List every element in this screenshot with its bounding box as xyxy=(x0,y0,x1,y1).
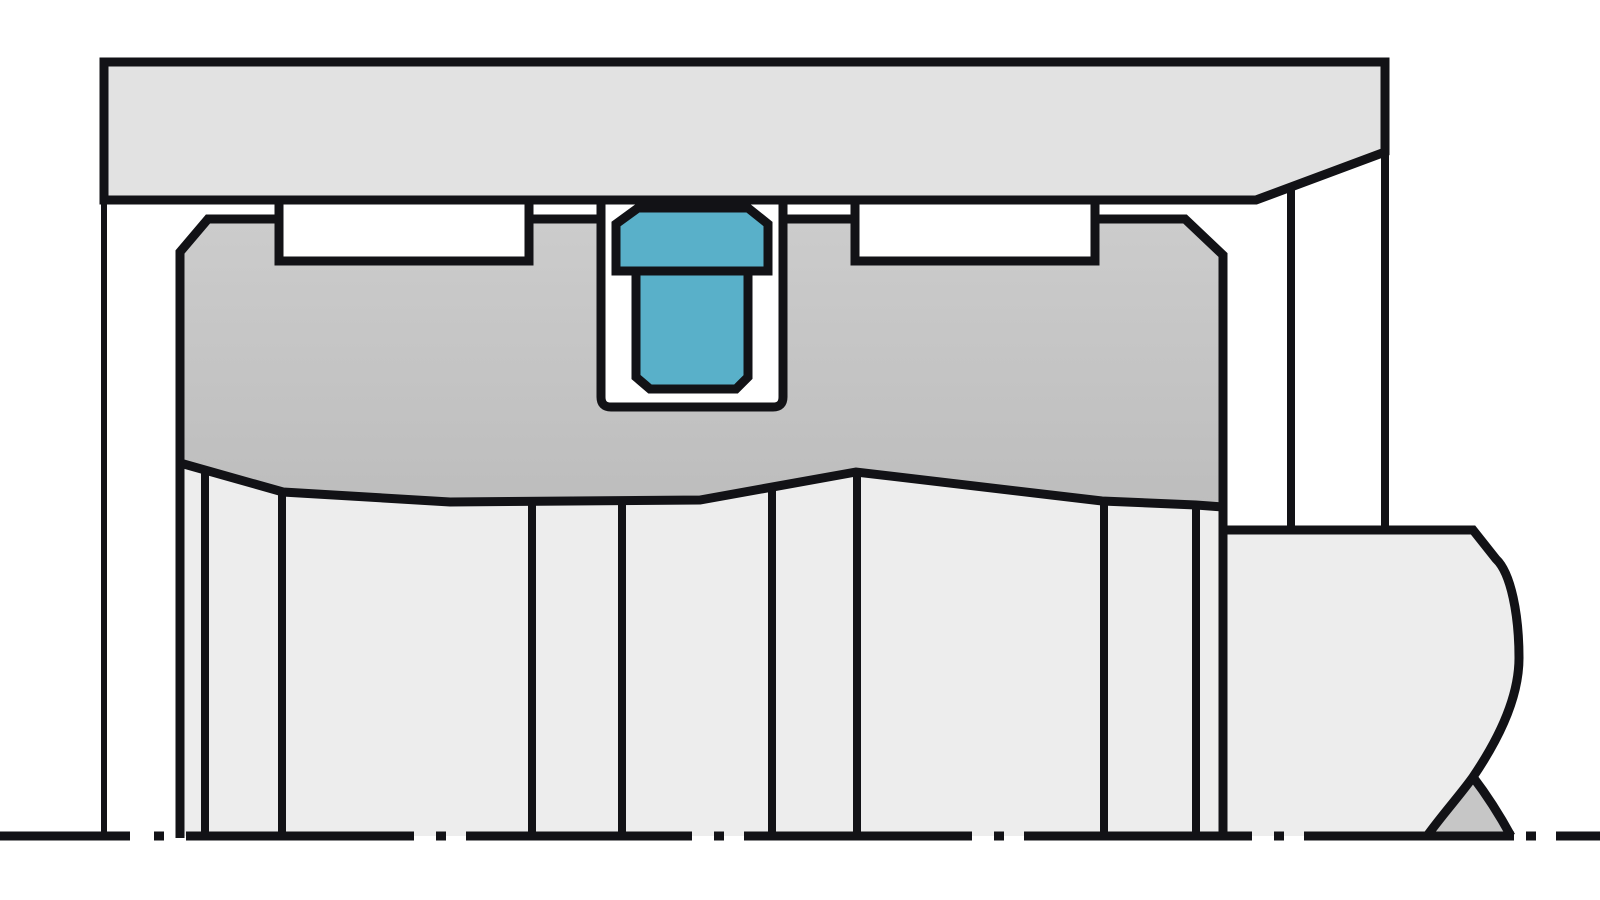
cylinder-block xyxy=(104,62,1385,200)
seal-body xyxy=(636,271,748,389)
diagram-canvas xyxy=(0,0,1600,900)
seal-cross-section-diagram xyxy=(0,0,1600,900)
piston-lower-body-fill xyxy=(180,463,1223,836)
seal-cap xyxy=(616,208,768,271)
